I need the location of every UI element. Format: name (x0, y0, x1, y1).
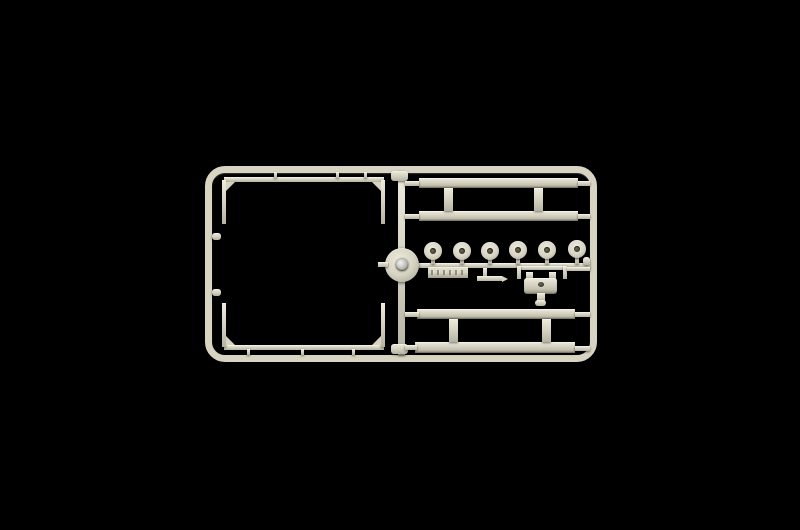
rail-part (419, 178, 578, 188)
gate (274, 172, 277, 178)
rail-connector (534, 188, 543, 211)
rail-part (419, 211, 578, 221)
t-part-bar (477, 276, 502, 281)
gate (567, 267, 590, 271)
gate (405, 345, 417, 350)
wheel-hub (481, 242, 499, 260)
rail-part (417, 309, 575, 319)
rail-connector (449, 319, 458, 342)
frame-tab (212, 289, 221, 296)
coupling-runner-left (517, 266, 521, 279)
wheel-hub-hole (515, 247, 521, 253)
square-corner-post-tr (381, 180, 385, 224)
wheel-hub (538, 241, 556, 259)
wheel-hub-hole (544, 247, 550, 253)
coupling-foot (535, 300, 546, 306)
embossed-text (431, 270, 463, 275)
sprue (0, 0, 800, 530)
gate (405, 312, 419, 317)
wheel-hub (509, 241, 527, 259)
square-gusset-bl (226, 336, 235, 345)
rail-connector (542, 319, 551, 342)
wheel-hub (453, 242, 471, 260)
rail-part (415, 342, 575, 353)
square-gusset-br (372, 336, 381, 345)
wheel-hub-hole (574, 246, 580, 252)
wheel-hub-hole (459, 248, 465, 254)
coupling-runner-top (517, 266, 567, 270)
rail-connector (444, 188, 453, 211)
coupling-hole (538, 282, 544, 287)
gate (352, 349, 355, 355)
wheel-hub-hole (487, 248, 493, 254)
wheel-hub-hole (430, 248, 436, 254)
gate (578, 181, 590, 186)
square-gusset-tl (226, 182, 235, 191)
photo-background (0, 0, 800, 530)
gate (364, 172, 367, 178)
part-number-tag (428, 267, 468, 278)
wheel-hub (424, 242, 442, 260)
runner-junction-pad-top (391, 171, 408, 181)
gate (336, 172, 339, 178)
t-part-tip (502, 276, 508, 282)
gate (575, 346, 590, 351)
gate (405, 181, 419, 186)
frame-tab (583, 257, 590, 265)
wheel-hub (568, 240, 586, 258)
square-gusset-tr (372, 182, 381, 191)
metal-pin (396, 259, 408, 271)
square-corner-post-br (381, 303, 385, 347)
gate (575, 312, 590, 317)
gate (578, 214, 590, 219)
gate (301, 349, 304, 355)
frame-tab (212, 233, 221, 240)
gate (405, 214, 419, 219)
gate (378, 262, 388, 267)
square-top-rail (224, 177, 384, 182)
gate (247, 349, 250, 355)
